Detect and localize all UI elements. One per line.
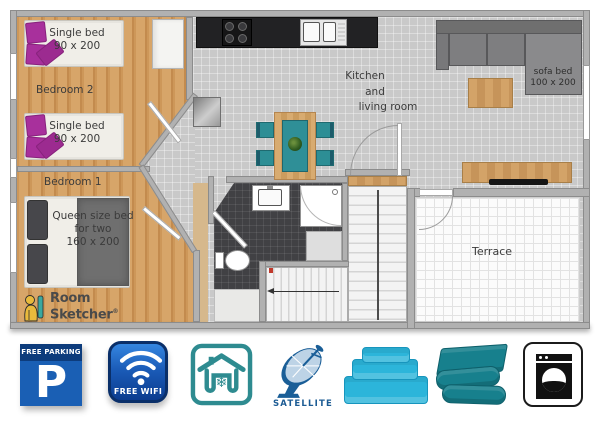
- stairs-direction-arrow: [273, 291, 339, 292]
- window-bedroom1: [10, 202, 17, 273]
- wall-right: [583, 10, 590, 329]
- pillow: [442, 384, 507, 405]
- free-wifi-label: FREE WIFI: [111, 387, 165, 396]
- toilet-bowl: [225, 250, 250, 271]
- air-conditioning-icon: ❄: [190, 343, 253, 406]
- staircase-landing: [348, 176, 407, 186]
- door-terrace: [419, 189, 453, 196]
- washer-water: [542, 381, 566, 392]
- wall-terrace-left: [407, 188, 415, 329]
- washer-control-panel: [536, 354, 572, 361]
- kitchen-living-label-line2: and: [345, 86, 405, 99]
- parking-letter: P: [20, 361, 82, 405]
- single-bed-2-label: Single bed 90 x 200: [32, 120, 122, 145]
- sofa-cushion: [487, 33, 525, 66]
- burner: [238, 34, 247, 43]
- kitchen-living-label-line3: living room: [338, 101, 438, 114]
- bathroom-faucet: [267, 185, 273, 189]
- towel-top: [362, 347, 410, 363]
- roomsketcher-logo-icon: [22, 292, 47, 323]
- window-living-room: [583, 65, 590, 140]
- shower-head: [332, 189, 338, 195]
- washer-body: [536, 363, 572, 399]
- bedroom1-label: Bedroom 1: [44, 176, 102, 189]
- wall-lower-stairs-top: [259, 261, 349, 267]
- sofa-bed-label: sofa bed 100 x 200: [524, 67, 582, 89]
- listing-graphic: Single bed 90 x 200 Single bed 90 x 200 …: [0, 0, 600, 424]
- wall-top: [10, 10, 590, 17]
- bedroom2-label: Bedroom 2: [36, 84, 94, 97]
- bed-linen-icon: [436, 344, 510, 406]
- stairs-arrowhead: [267, 288, 274, 294]
- wardrobe: [152, 19, 184, 69]
- sink-drainboard: [338, 23, 345, 41]
- snowflake-icon: ❄: [190, 375, 253, 391]
- free-parking-icon: FREE PARKING P: [20, 344, 82, 406]
- washing-machine-icon: [523, 342, 583, 407]
- wall-terrace-top-b: [453, 188, 590, 197]
- burner: [225, 34, 234, 43]
- queen-bed-pillow: [27, 244, 48, 284]
- towel-bottom: [344, 376, 428, 404]
- toilet-tank: [215, 252, 224, 269]
- roomsketcher-logo-text: Room Sketcher®: [50, 292, 118, 321]
- satellite-icon: SATELLITE: [272, 339, 334, 409]
- single-bed-1-label: Single bed 90 x 200: [32, 27, 122, 52]
- towels-icon: [344, 347, 428, 403]
- window-mid-left: [10, 158, 17, 178]
- kitchen-living-label-line1: Kitchen: [325, 70, 405, 83]
- satellite-dish-icon: [272, 339, 334, 399]
- dining-chair: [316, 150, 334, 166]
- sink-basin: [323, 22, 336, 42]
- sink-basin: [303, 22, 320, 42]
- bathroom-sink-basin: [258, 189, 282, 206]
- dining-chair: [316, 122, 334, 138]
- floor-plan: Single bed 90 x 200 Single bed 90 x 200 …: [0, 0, 600, 335]
- dining-chair: [256, 150, 274, 166]
- bathroom-closet: [306, 231, 342, 261]
- wall-bathroom-stairs: [342, 183, 348, 261]
- free-wifi-icon: FREE WIFI: [108, 341, 168, 403]
- stairs-marker: [269, 268, 273, 273]
- wall-lower-stairs-left: [259, 261, 266, 322]
- tv: [489, 179, 548, 185]
- wall-bottom: [10, 322, 590, 329]
- queen-bed-label: Queen size bed for two 160 x 200: [38, 210, 148, 249]
- washer-door: [542, 368, 566, 392]
- table-plant: [288, 137, 302, 151]
- window-bedroom2: [10, 53, 17, 100]
- wifi-waves-icon: [114, 348, 168, 386]
- wall-between-bedrooms: [17, 166, 150, 172]
- staircase-rail: [377, 190, 379, 320]
- coffee-table: [468, 78, 513, 108]
- satellite-label: SATELLITE: [264, 399, 342, 409]
- burner: [238, 22, 247, 31]
- wall-bedroom1-right: [193, 250, 200, 322]
- dining-chair: [256, 122, 274, 138]
- burner: [225, 22, 234, 31]
- staircase-lower-flight: [266, 267, 348, 322]
- terrace-label: Terrace: [437, 245, 547, 258]
- sofa-cushion: [449, 33, 487, 66]
- sofa-armrest: [436, 33, 449, 70]
- wall-bathroom-left: [208, 176, 214, 224]
- fridge: [193, 97, 221, 127]
- wall-bedroom2-right: [186, 17, 193, 100]
- amenities-row: FREE PARKING P FREE WIFI ❄: [0, 335, 600, 424]
